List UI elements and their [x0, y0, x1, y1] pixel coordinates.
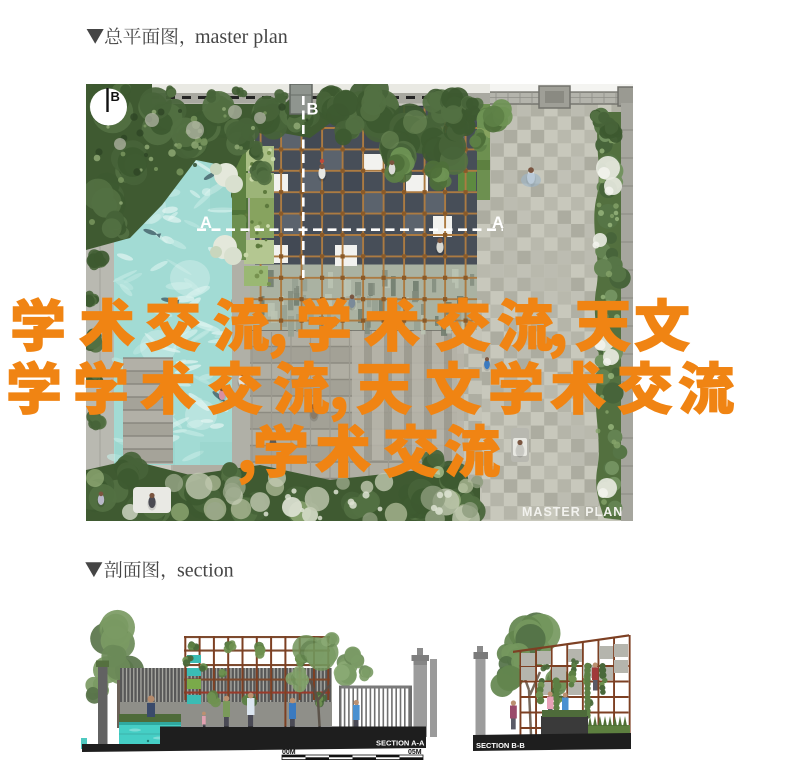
svg-text:A: A — [200, 214, 212, 232]
svg-text:A: A — [492, 214, 504, 232]
svg-text:SECTION B-B: SECTION B-B — [476, 741, 525, 750]
svg-text:00M: 00M — [282, 749, 296, 756]
svg-text:05M: 05M — [408, 749, 422, 756]
svg-text:section: section — [177, 560, 234, 582]
svg-text:MASTER PLAN: MASTER PLAN — [522, 505, 623, 519]
svg-text:master plan: master plan — [195, 26, 288, 48]
svg-text:B: B — [111, 89, 120, 104]
svg-text:SECTION A-A: SECTION A-A — [376, 739, 425, 748]
svg-text:B: B — [307, 101, 319, 119]
